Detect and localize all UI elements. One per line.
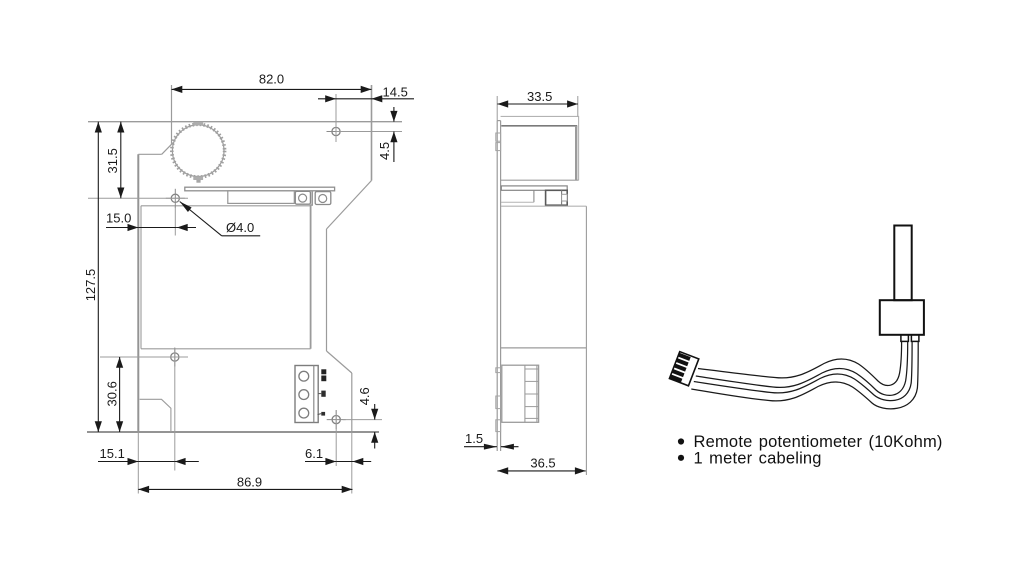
svg-text:33.5: 33.5 — [527, 89, 552, 104]
svg-text:1 meter cabeling: 1 meter cabeling — [694, 449, 822, 467]
svg-text:15.1: 15.1 — [100, 446, 125, 461]
svg-text:6.1: 6.1 — [305, 446, 323, 461]
svg-text:1.5: 1.5 — [465, 431, 483, 446]
svg-text:4.6: 4.6 — [357, 387, 372, 405]
svg-text:127.5: 127.5 — [83, 269, 98, 302]
svg-text:15.0: 15.0 — [106, 211, 131, 226]
svg-text:14.5: 14.5 — [383, 84, 408, 99]
svg-text:31.5: 31.5 — [105, 148, 120, 173]
svg-text:30.6: 30.6 — [104, 381, 119, 406]
svg-text:82.0: 82.0 — [259, 72, 284, 87]
svg-text:36.5: 36.5 — [530, 455, 555, 470]
svg-text:4.5: 4.5 — [377, 142, 392, 160]
svg-text:Ø4.0: Ø4.0 — [226, 220, 254, 235]
svg-text:Remote potentiometer (10Kohm: Remote potentiometer (10Kohm) — [694, 433, 943, 451]
svg-text:86.9: 86.9 — [237, 474, 262, 489]
